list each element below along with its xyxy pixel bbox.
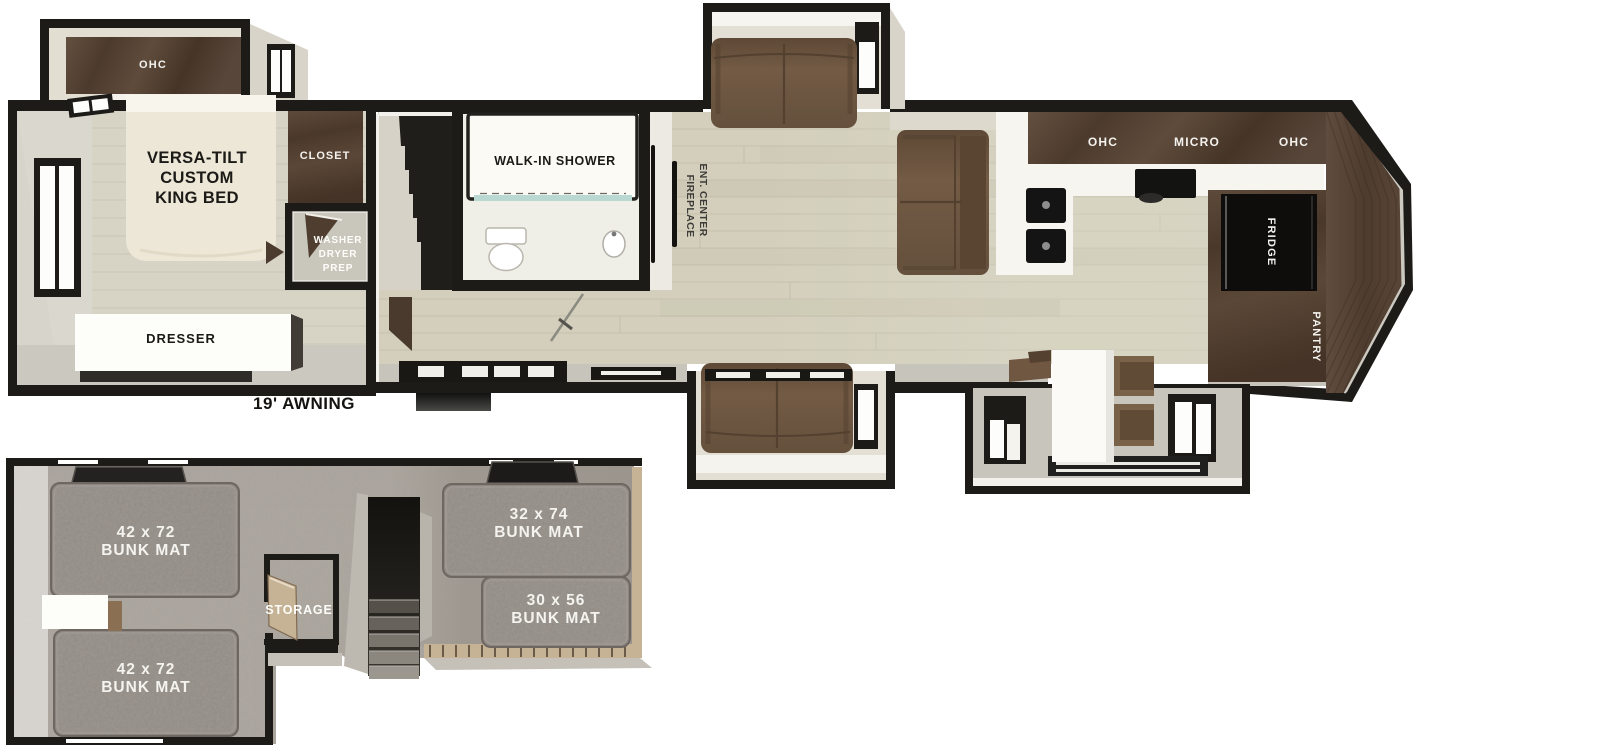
- svg-text:OHC: OHC: [139, 59, 167, 71]
- svg-text:CUSTOM: CUSTOM: [160, 169, 234, 187]
- svg-text:MICRO: MICRO: [1174, 135, 1220, 149]
- svg-text:BUNK MAT: BUNK MAT: [101, 542, 191, 559]
- svg-text:VERSA-TILT: VERSA-TILT: [147, 149, 247, 167]
- svg-text:30 x 56: 30 x 56: [527, 592, 586, 609]
- svg-text:PANTRY: PANTRY: [1310, 311, 1322, 362]
- svg-text:19' AWNING: 19' AWNING: [253, 394, 355, 413]
- svg-text:WALK-IN SHOWER: WALK-IN SHOWER: [494, 154, 616, 168]
- svg-text:FIREPLACE: FIREPLACE: [684, 174, 696, 237]
- svg-text:ENT. CENTER: ENT. CENTER: [697, 163, 709, 236]
- svg-text:CLOSET: CLOSET: [300, 150, 351, 162]
- svg-text:32 x 74: 32 x 74: [510, 506, 569, 523]
- svg-text:OHC: OHC: [1279, 135, 1309, 149]
- svg-text:KING BED: KING BED: [155, 189, 239, 207]
- svg-text:STORAGE: STORAGE: [265, 603, 332, 617]
- svg-text:OHC: OHC: [1088, 135, 1118, 149]
- svg-text:BUNK MAT: BUNK MAT: [511, 610, 601, 627]
- svg-text:PREP: PREP: [323, 263, 353, 274]
- svg-text:FRIDGE: FRIDGE: [1265, 218, 1277, 267]
- svg-text:DRESSER: DRESSER: [146, 331, 216, 346]
- svg-text:DRYER: DRYER: [319, 249, 358, 260]
- svg-text:42 x 72: 42 x 72: [117, 524, 176, 541]
- svg-text:BUNK MAT: BUNK MAT: [494, 524, 584, 541]
- svg-text:BUNK MAT: BUNK MAT: [101, 679, 191, 696]
- svg-text:WASHER: WASHER: [314, 235, 363, 246]
- svg-text:42 x 72: 42 x 72: [117, 661, 176, 678]
